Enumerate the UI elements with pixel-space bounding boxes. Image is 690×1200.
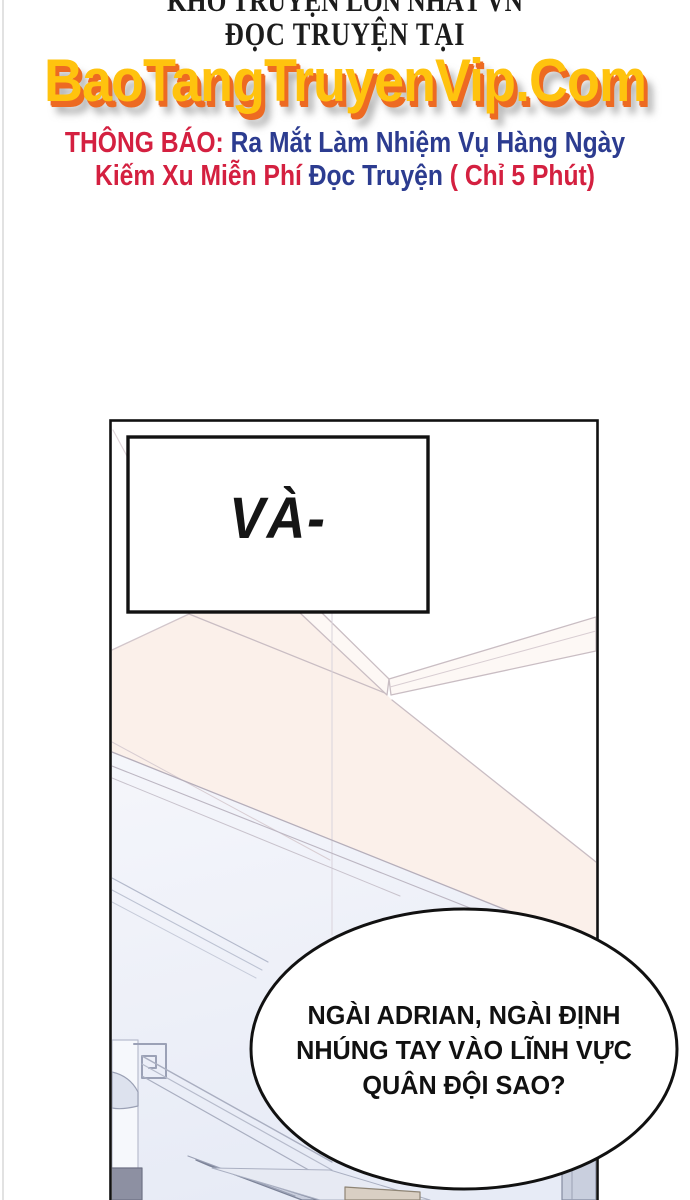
notice-line2-red: Kiếm Xu Miễn Phí xyxy=(95,160,309,192)
notice-line1-text: Ra Mắt Làm Nhiệm Vụ Hàng Ngày xyxy=(231,127,625,159)
pilaster-base xyxy=(110,1168,142,1200)
notice-line2-red2: ( Chỉ 5 Phút) xyxy=(450,160,595,192)
bubble-line: NGÀI ADRIAN, NGÀI ĐỊNH xyxy=(308,998,621,1033)
site-logo: BaoTangTruyenVip.Com xyxy=(0,46,690,115)
speech-bubble-text: NGÀI ADRIAN, NGÀI ĐỊNH NHÚNG TAY VÀO LĨN… xyxy=(260,918,667,1182)
bubble-line: QUÂN ĐỘI SAO? xyxy=(362,1068,565,1103)
caption-text: VÀ- xyxy=(140,437,416,612)
comic-page: KHO TRUYỆN LỚN NHẤT VN ĐỌC TRUYỆN TẠI Ba… xyxy=(0,0,690,1200)
notice-line2-blue: Đọc Truyện xyxy=(309,160,450,192)
notice-line1: THÔNG BÁO: Ra Mắt Làm Nhiệm Vụ Hàng Ngày xyxy=(52,127,639,160)
notice-line2: Kiếm Xu Miễn Phí Đọc Truyện ( Chỉ 5 Phút… xyxy=(52,160,639,193)
notice-label: THÔNG BÁO: xyxy=(65,127,231,159)
bubble-line: NHÚNG TAY VÀO LĨNH VỰC xyxy=(296,1033,632,1068)
